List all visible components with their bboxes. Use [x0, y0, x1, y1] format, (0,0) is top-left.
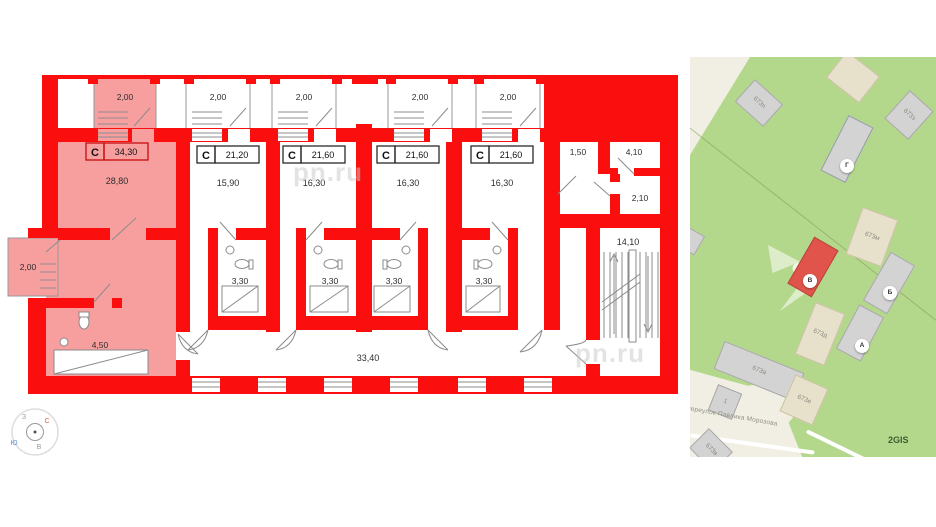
compass-west: З: [22, 414, 26, 421]
balcony-label-1: 2,00: [117, 92, 134, 102]
compass-south: Ю: [10, 440, 17, 447]
compass-east: В: [37, 444, 42, 451]
building-673d: 673д: [795, 302, 846, 366]
bathroom-label-3: 3,30: [322, 276, 339, 286]
stairs: [602, 250, 658, 342]
service-room-2: 4,10: [626, 147, 643, 157]
compass-north: С: [44, 418, 49, 425]
map-marker-a[interactable]: А: [855, 339, 869, 353]
compass: З С Ю В: [10, 409, 58, 455]
unit-type-5: C: [476, 150, 484, 162]
bathroom-label-1: 4,50: [92, 340, 109, 350]
building-673z: 673з: [884, 90, 933, 140]
balcony-label-5: 2,00: [500, 92, 517, 102]
watermark-1: pn.ru: [293, 157, 363, 187]
unit-total-5: 21,60: [500, 150, 523, 160]
side-balcony-label: 2,00: [20, 262, 37, 272]
unit-type-4: C: [382, 150, 390, 162]
stairwell-label: 14,10: [617, 237, 640, 247]
bathroom-label-2: 3,30: [232, 276, 249, 286]
location-map[interactable]: 673п 673з 673м 673д 673а 1 673е 673в Г В: [690, 57, 936, 457]
map-marker-v[interactable]: В: [803, 274, 817, 288]
unit-total-4: 21,60: [406, 150, 429, 160]
map-marker-b[interactable]: Б: [883, 286, 897, 300]
unit-type-1: C: [91, 147, 99, 159]
unit-total-2: 21,20: [226, 150, 249, 160]
map-attribution: 2GIS: [888, 435, 909, 445]
building-673p: 673п: [735, 79, 783, 127]
room-area-1: 28,80: [106, 176, 129, 186]
map-marker-g[interactable]: Г: [840, 159, 854, 173]
balcony-label-3: 2,00: [296, 92, 313, 102]
bathroom-label-5: 3,30: [476, 276, 493, 286]
building-unlabeled-top: [826, 57, 880, 103]
watermark-2: pn.ru: [575, 338, 645, 368]
balconies: [186, 78, 540, 130]
service-room-3: 2,10: [632, 193, 649, 203]
bathroom-label-4: 3,30: [386, 276, 403, 286]
floorplan-drawing: 2,00 2,00 2,00 2,00 2,00 2,00 C 34,30 C …: [0, 0, 690, 527]
listing-floorplan-view: 2,00 2,00 2,00 2,00 2,00 2,00 C 34,30 C …: [0, 0, 936, 527]
unit-total-1: 34,30: [115, 147, 138, 157]
balcony-label-2: 2,00: [210, 92, 227, 102]
room-area-2: 15,90: [217, 178, 240, 188]
building-673t-partial: [690, 226, 705, 255]
room-area-5: 16,30: [491, 178, 514, 188]
unit-type-2: C: [202, 150, 210, 162]
room-area-4: 16,30: [397, 178, 420, 188]
balcony-label-4: 2,00: [412, 92, 429, 102]
service-room-1: 1,50: [570, 147, 587, 157]
corridor-label: 33,40: [357, 353, 380, 363]
